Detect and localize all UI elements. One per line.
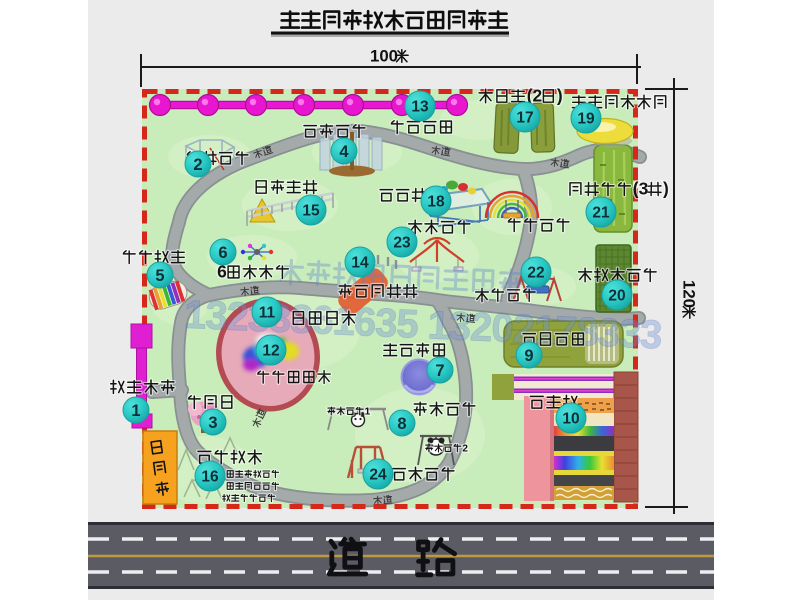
svg-text:4: 4 <box>339 143 349 161</box>
svg-text:17: 17 <box>516 110 533 127</box>
svg-text:2: 2 <box>462 443 468 454</box>
svg-text:21: 21 <box>592 205 610 222</box>
svg-text:7: 7 <box>435 362 444 380</box>
svg-text:16: 16 <box>201 469 219 486</box>
svg-text:20: 20 <box>608 288 625 305</box>
svg-text:3: 3 <box>208 414 217 432</box>
svg-text:): ) <box>557 86 563 106</box>
svg-text:6: 6 <box>218 244 227 262</box>
svg-text:12: 12 <box>262 343 279 360</box>
svg-text:11: 11 <box>259 305 276 322</box>
svg-text:5: 5 <box>155 267 164 285</box>
svg-text:100: 100 <box>370 47 398 66</box>
svg-text:120: 120 <box>679 280 698 308</box>
svg-text:18: 18 <box>427 194 445 211</box>
svg-text:1: 1 <box>365 406 371 417</box>
svg-text:9: 9 <box>524 347 533 365</box>
svg-text:22: 22 <box>527 265 544 282</box>
svg-text:(3: (3 <box>633 179 649 199</box>
svg-text:15: 15 <box>302 203 320 220</box>
svg-text:8: 8 <box>397 415 406 433</box>
svg-text:19: 19 <box>577 111 595 128</box>
svg-text:24: 24 <box>369 467 387 484</box>
svg-text:13: 13 <box>411 99 429 116</box>
svg-text:2: 2 <box>193 156 202 174</box>
svg-text:10: 10 <box>562 411 579 428</box>
svg-text:23: 23 <box>393 235 411 252</box>
svg-text:1: 1 <box>131 402 140 420</box>
svg-text:): ) <box>663 179 669 199</box>
svg-text:14: 14 <box>351 255 369 272</box>
